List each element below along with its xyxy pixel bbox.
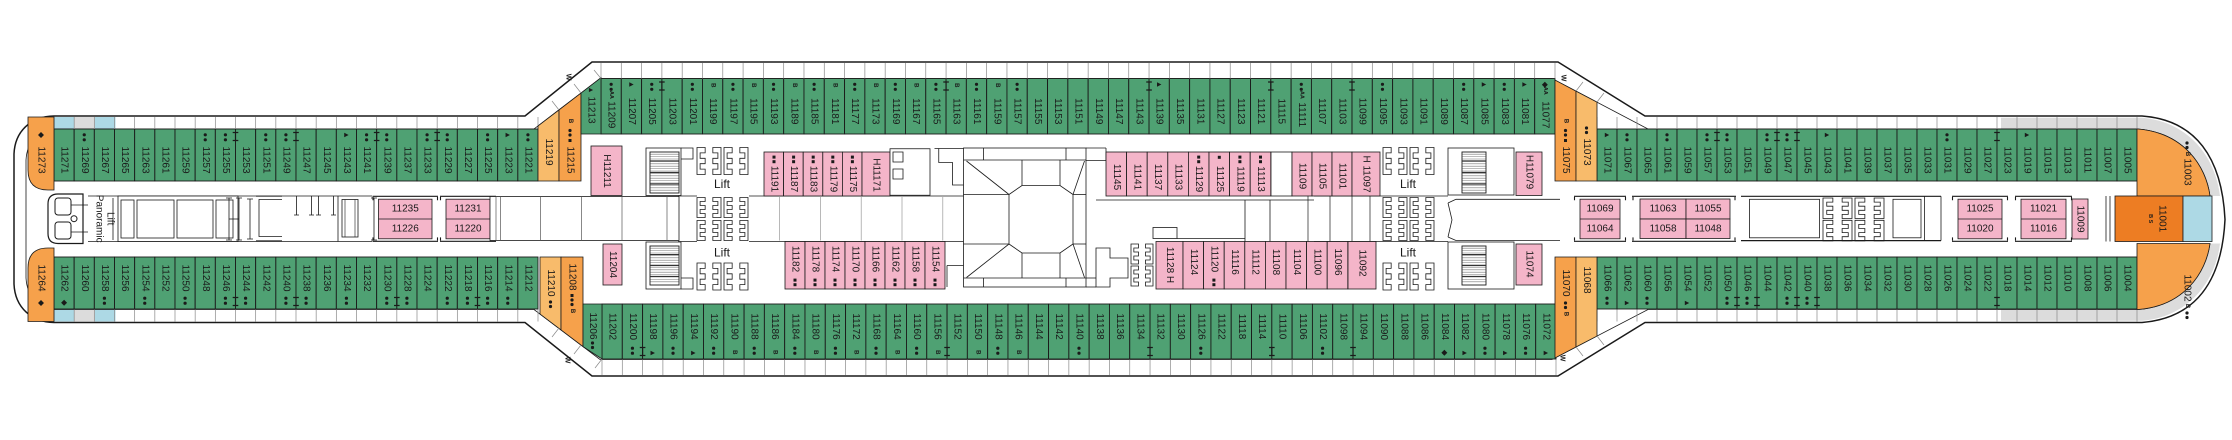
svg-text:W: W <box>1560 75 1567 82</box>
svg-text:11057: 11057 <box>1702 146 1713 174</box>
svg-text:11168: 11168 <box>871 313 882 340</box>
svg-text:11005: 11005 <box>2122 146 2133 174</box>
svg-text:11190: 11190 <box>728 313 739 340</box>
svg-text:11225: 11225 <box>482 146 493 174</box>
svg-text:11244: 11244 <box>240 264 251 292</box>
svg-text:11047: 11047 <box>1782 146 1793 174</box>
svg-text:11008: 11008 <box>2082 264 2093 292</box>
svg-text:11173: 11173 <box>870 98 881 125</box>
svg-text:11179: 11179 <box>827 166 838 193</box>
svg-text:11191: 11191 <box>769 166 780 193</box>
svg-text:11125: 11125 <box>1214 166 1225 193</box>
svg-text:B: B <box>953 83 959 88</box>
svg-text:11150: 11150 <box>972 313 983 340</box>
svg-text:11092: 11092 <box>1357 249 1368 277</box>
svg-text:11041: 11041 <box>1842 146 1853 174</box>
svg-text:11090: 11090 <box>1378 313 1389 341</box>
svg-text:11078: 11078 <box>1500 313 1511 341</box>
svg-text:11143: 11143 <box>1133 98 1144 125</box>
svg-text:11130: 11130 <box>1175 313 1186 340</box>
svg-text:11202: 11202 <box>607 313 618 341</box>
svg-text:11147: 11147 <box>1113 98 1124 125</box>
svg-text:11127: 11127 <box>1215 98 1226 125</box>
svg-text:11023: 11023 <box>2002 146 2013 174</box>
svg-text:11152: 11152 <box>952 313 963 340</box>
svg-text:11224: 11224 <box>422 264 433 292</box>
svg-text:11246: 11246 <box>220 264 231 292</box>
svg-text:Lift: Lift <box>1400 246 1417 260</box>
svg-text:11070: 11070 <box>1560 269 1571 297</box>
svg-text:11176: 11176 <box>830 313 841 340</box>
svg-text:B: B <box>872 83 878 88</box>
svg-text:11083: 11083 <box>1499 98 1510 126</box>
svg-text:11236: 11236 <box>321 264 332 292</box>
svg-text:B: B <box>812 350 818 355</box>
svg-text:11016: 11016 <box>2030 224 2058 235</box>
svg-text:H11171: H11171 <box>871 158 882 192</box>
svg-text:11234: 11234 <box>341 264 352 292</box>
svg-text:11063: 11063 <box>1649 204 1677 215</box>
svg-text:11036: 11036 <box>1842 264 1853 292</box>
svg-text:11115: 11115 <box>1275 98 1286 124</box>
svg-text:11157: 11157 <box>1012 98 1023 125</box>
svg-text:Lift: Lift <box>1400 177 1417 191</box>
svg-text:11248: 11248 <box>200 264 211 292</box>
svg-text:11106: 11106 <box>1297 313 1308 340</box>
svg-text:11123: 11123 <box>1235 98 1246 125</box>
svg-text:11135: 11135 <box>1174 98 1185 125</box>
svg-text:11271: 11271 <box>59 146 70 174</box>
svg-text:W: W <box>564 357 571 364</box>
svg-text:11035: 11035 <box>1902 146 1913 174</box>
svg-text:11094: 11094 <box>1358 313 1369 341</box>
svg-text:11019: 11019 <box>2022 146 2033 174</box>
svg-text:11038: 11038 <box>1822 264 1833 292</box>
svg-text:11206: 11206 <box>587 312 598 340</box>
svg-text:11189: 11189 <box>788 98 799 125</box>
svg-text:11108: 11108 <box>1270 249 1281 276</box>
svg-text:11048: 11048 <box>1694 224 1722 235</box>
svg-text:11138: 11138 <box>1094 313 1105 340</box>
svg-text:11261: 11261 <box>159 146 170 174</box>
svg-text:11166: 11166 <box>870 246 881 273</box>
svg-text:11229: 11229 <box>442 146 453 174</box>
svg-text:11255: 11255 <box>220 146 231 174</box>
svg-text:Lift: Lift <box>105 212 116 226</box>
svg-text:11237: 11237 <box>401 146 412 174</box>
svg-text:11240: 11240 <box>280 264 291 292</box>
svg-text:11084: 11084 <box>1439 313 1450 341</box>
svg-text:B: B <box>567 119 573 124</box>
svg-text:11151: 11151 <box>1073 98 1084 125</box>
svg-text:11257: 11257 <box>200 146 211 174</box>
svg-text:11162: 11162 <box>890 246 901 273</box>
svg-text:11251: 11251 <box>260 146 271 174</box>
svg-text:11056: 11056 <box>1662 264 1673 292</box>
svg-text:11252: 11252 <box>159 264 170 292</box>
svg-text:11192: 11192 <box>708 313 719 340</box>
svg-text:11269: 11269 <box>79 146 90 174</box>
svg-text:B: B <box>831 83 837 88</box>
svg-text:11022: 11022 <box>1982 264 1993 292</box>
svg-text:11273: 11273 <box>36 146 47 174</box>
svg-text:11222: 11222 <box>442 264 453 292</box>
svg-text:11122: 11122 <box>1216 313 1227 340</box>
svg-text:B: B <box>853 350 859 355</box>
svg-text:11232: 11232 <box>361 264 372 292</box>
svg-text:11004: 11004 <box>2122 264 2133 292</box>
svg-text:11014: 11014 <box>2022 264 2033 292</box>
svg-text:11213: 11213 <box>586 96 597 124</box>
svg-text:11260: 11260 <box>79 264 90 292</box>
svg-text:11181: 11181 <box>829 98 840 125</box>
svg-text:11170: 11170 <box>850 246 861 273</box>
svg-text:11195: 11195 <box>748 98 759 125</box>
svg-text:11043: 11043 <box>1822 146 1833 174</box>
svg-text:11231: 11231 <box>454 204 482 215</box>
svg-text:B S: B S <box>2147 214 2153 224</box>
svg-text:11050: 11050 <box>1722 264 1733 292</box>
svg-text:11077: 11077 <box>1539 101 1550 129</box>
svg-text:11216: 11216 <box>482 264 493 292</box>
svg-text:11131: 11131 <box>1194 98 1205 125</box>
svg-text:11154: 11154 <box>930 246 941 273</box>
svg-text:11188: 11188 <box>749 313 760 340</box>
svg-text:11204: 11204 <box>607 251 618 279</box>
svg-text:11088: 11088 <box>1398 313 1409 341</box>
svg-text:11110: 11110 <box>1276 314 1287 340</box>
svg-text:B: B <box>791 83 797 88</box>
svg-text:11113: 11113 <box>1255 166 1266 192</box>
svg-text:Panoramic: Panoramic <box>94 195 105 243</box>
svg-text:11129: 11129 <box>1193 166 1204 193</box>
svg-text:AA: AA <box>1542 87 1548 95</box>
svg-text:11080: 11080 <box>1479 313 1490 341</box>
svg-text:11198: 11198 <box>647 313 658 340</box>
svg-text:11197: 11197 <box>727 98 738 125</box>
svg-text:11006: 11006 <box>2102 264 2113 292</box>
svg-text:11086: 11086 <box>1419 313 1430 341</box>
svg-text:11031: 11031 <box>1942 146 1953 174</box>
svg-text:11137: 11137 <box>1152 164 1163 191</box>
svg-text:11033: 11033 <box>1922 146 1933 174</box>
svg-text:11228: 11228 <box>401 264 412 292</box>
svg-text:11177: 11177 <box>849 98 860 125</box>
svg-text:W: W <box>1559 355 1566 362</box>
svg-text:11187: 11187 <box>788 166 799 193</box>
svg-text:W: W <box>565 74 572 81</box>
svg-text:11262: 11262 <box>59 264 70 292</box>
svg-text:11178: 11178 <box>810 246 821 273</box>
svg-text:B: B <box>2184 304 2190 309</box>
svg-text:11116: 11116 <box>1229 249 1240 275</box>
svg-text:11193: 11193 <box>768 98 779 125</box>
svg-text:11066: 11066 <box>1602 264 1613 292</box>
svg-text:11241: 11241 <box>361 146 372 174</box>
svg-text:11030: 11030 <box>1902 264 1913 292</box>
svg-text:11104: 11104 <box>1291 249 1302 276</box>
svg-text:11139: 11139 <box>1154 98 1165 125</box>
svg-text:11242: 11242 <box>260 264 271 292</box>
svg-text:11199: 11199 <box>707 98 718 125</box>
svg-text:11239: 11239 <box>381 146 392 174</box>
svg-text:11214: 11214 <box>502 264 513 292</box>
svg-text:11249: 11249 <box>280 146 291 174</box>
svg-text:11091: 11091 <box>1418 98 1429 126</box>
svg-text:11044: 11044 <box>1762 264 1773 292</box>
svg-text:B: B <box>913 83 919 88</box>
svg-text:11142: 11142 <box>1053 313 1064 340</box>
svg-text:11185: 11185 <box>809 98 820 125</box>
svg-text:11053: 11053 <box>1722 146 1733 174</box>
svg-text:11169: 11169 <box>890 98 901 125</box>
svg-text:11175: 11175 <box>847 166 858 193</box>
svg-text:11011: 11011 <box>2082 147 2093 174</box>
svg-text:11208: 11208 <box>567 263 578 291</box>
svg-text:11158: 11158 <box>910 246 921 273</box>
svg-text:11215: 11215 <box>565 146 576 174</box>
svg-text:11227: 11227 <box>462 146 473 174</box>
svg-text:11194: 11194 <box>688 313 699 340</box>
svg-text:B: B <box>2184 152 2190 157</box>
svg-text:11067: 11067 <box>1622 146 1633 174</box>
svg-text:11105: 11105 <box>1317 163 1328 190</box>
svg-text:11254: 11254 <box>139 264 150 292</box>
svg-text:11007: 11007 <box>2102 146 2113 174</box>
svg-text:11119: 11119 <box>1234 166 1245 192</box>
svg-text:11029: 11029 <box>1962 146 1973 174</box>
svg-text:11153: 11153 <box>1052 98 1063 125</box>
svg-text:11073: 11073 <box>1581 138 1592 166</box>
svg-text:11264: 11264 <box>36 264 47 292</box>
svg-text:11052: 11052 <box>1702 264 1713 292</box>
svg-text:Lift: Lift <box>714 246 731 260</box>
svg-text:11111: 11111 <box>1296 102 1307 127</box>
svg-text:11209: 11209 <box>606 101 617 129</box>
svg-text:11074: 11074 <box>1524 250 1535 278</box>
svg-text:B: B <box>1563 312 1569 317</box>
svg-text:11226: 11226 <box>392 224 420 235</box>
svg-text:11087: 11087 <box>1458 98 1469 126</box>
svg-text:11250: 11250 <box>180 264 191 292</box>
svg-text:11218: 11218 <box>462 264 473 292</box>
svg-text:11025: 11025 <box>1966 204 1994 215</box>
svg-text:11134: 11134 <box>1134 313 1145 340</box>
svg-text:11010: 11010 <box>2062 264 2073 292</box>
svg-text:11233: 11233 <box>422 146 433 174</box>
svg-text:B: B <box>750 83 756 88</box>
svg-text:11118: 11118 <box>1236 314 1247 340</box>
svg-text:11200: 11200 <box>627 313 638 341</box>
svg-text:11009: 11009 <box>2075 205 2086 233</box>
svg-text:11145: 11145 <box>1111 164 1122 191</box>
svg-text:11258: 11258 <box>99 264 110 292</box>
svg-text:11102: 11102 <box>1317 313 1328 340</box>
svg-text:11101: 11101 <box>1337 163 1348 190</box>
svg-text:11126: 11126 <box>1195 313 1206 340</box>
svg-text:11210: 11210 <box>545 269 556 297</box>
svg-text:11081: 11081 <box>1519 98 1530 126</box>
svg-text:11247: 11247 <box>301 146 312 174</box>
svg-text:11112: 11112 <box>1250 249 1261 275</box>
svg-text:11100: 11100 <box>1311 249 1322 276</box>
svg-text:11159: 11159 <box>991 98 1002 125</box>
svg-text:11205: 11205 <box>646 98 657 126</box>
svg-text:11065: 11065 <box>1642 146 1653 174</box>
svg-text:11263: 11263 <box>139 146 150 174</box>
svg-text:11013: 11013 <box>2062 146 2073 174</box>
svg-text:11161: 11161 <box>971 98 982 125</box>
svg-text:11212: 11212 <box>522 264 533 292</box>
svg-text:11253: 11253 <box>240 146 251 174</box>
svg-text:11064: 11064 <box>1586 224 1614 235</box>
svg-text:11075: 11075 <box>1560 146 1571 174</box>
svg-text:11221: 11221 <box>522 146 533 174</box>
svg-text:11155: 11155 <box>1032 98 1043 125</box>
svg-text:H 11097: H 11097 <box>1361 155 1372 193</box>
svg-text:H11079: H11079 <box>1524 155 1535 190</box>
svg-text:11076: 11076 <box>1520 313 1531 341</box>
svg-text:11220: 11220 <box>454 224 482 235</box>
svg-text:11180: 11180 <box>810 313 821 340</box>
svg-text:11267: 11267 <box>99 146 110 174</box>
svg-text:11069: 11069 <box>1586 204 1614 215</box>
svg-text:11001: 11001 <box>2157 205 2168 233</box>
svg-text:11071: 11071 <box>1602 146 1613 174</box>
svg-text:11160: 11160 <box>911 313 922 340</box>
svg-text:11121: 11121 <box>1255 98 1266 125</box>
svg-text:11021: 11021 <box>2030 204 2058 215</box>
svg-text:11027: 11027 <box>1982 146 1993 174</box>
svg-text:11149: 11149 <box>1093 98 1104 125</box>
svg-text:11140: 11140 <box>1074 313 1085 340</box>
svg-text:11219: 11219 <box>543 138 554 166</box>
svg-text:11156: 11156 <box>931 313 942 340</box>
svg-text:B: B <box>710 83 716 88</box>
svg-text:11060: 11060 <box>1642 264 1653 292</box>
svg-text:11032: 11032 <box>1882 264 1893 292</box>
svg-text:11085: 11085 <box>1478 98 1489 126</box>
svg-text:11141: 11141 <box>1131 164 1142 191</box>
svg-text:11201: 11201 <box>687 98 698 126</box>
svg-text:11107: 11107 <box>1316 98 1327 125</box>
svg-text:11259: 11259 <box>180 146 191 174</box>
svg-text:11095: 11095 <box>1377 98 1388 126</box>
svg-text:11099: 11099 <box>1357 98 1368 126</box>
svg-text:11182: 11182 <box>790 246 801 273</box>
svg-text:11040: 11040 <box>1802 264 1813 292</box>
svg-text:11072: 11072 <box>1540 313 1551 341</box>
svg-text:B: B <box>772 350 778 355</box>
svg-text:H11211: H11211 <box>601 154 612 188</box>
svg-text:11174: 11174 <box>830 246 841 273</box>
svg-text:11148: 11148 <box>992 313 1003 340</box>
svg-text:11046: 11046 <box>1742 264 1753 292</box>
svg-text:Lift: Lift <box>714 177 731 191</box>
svg-text:11207: 11207 <box>626 98 637 126</box>
svg-text:AA: AA <box>608 91 614 99</box>
svg-text:11164: 11164 <box>891 313 902 340</box>
svg-text:11165: 11165 <box>930 98 941 125</box>
svg-text:B: B <box>994 83 1000 88</box>
svg-text:11002: 11002 <box>2182 274 2193 302</box>
svg-text:11089: 11089 <box>1438 98 1449 126</box>
svg-text:11093: 11093 <box>1397 98 1408 126</box>
svg-text:11096: 11096 <box>1332 248 1343 276</box>
svg-text:11098: 11098 <box>1337 313 1348 341</box>
svg-text:11238: 11238 <box>301 264 312 292</box>
svg-text:11026: 11026 <box>1942 264 1953 292</box>
svg-text:11203: 11203 <box>667 98 678 126</box>
svg-text:11045: 11045 <box>1802 146 1813 174</box>
svg-text:B: B <box>934 350 940 355</box>
svg-text:11132: 11132 <box>1155 313 1166 340</box>
svg-text:11196: 11196 <box>668 313 679 340</box>
svg-text:11042: 11042 <box>1782 264 1793 292</box>
svg-text:11243: 11243 <box>341 146 352 174</box>
svg-text:B: B <box>1015 350 1021 355</box>
svg-text:11146: 11146 <box>1013 313 1024 340</box>
svg-text:11128 H: 11128 H <box>1164 247 1175 283</box>
svg-text:11082: 11082 <box>1459 313 1470 341</box>
svg-text:11061: 11061 <box>1662 146 1673 174</box>
svg-text:11039: 11039 <box>1862 146 1873 174</box>
svg-text:11015: 11015 <box>2042 146 2053 174</box>
svg-text:11003: 11003 <box>2182 158 2193 186</box>
svg-text:11055: 11055 <box>1694 204 1722 215</box>
svg-text:11012: 11012 <box>2042 264 2053 292</box>
svg-text:11256: 11256 <box>119 264 130 292</box>
svg-text:11018: 11018 <box>2002 264 2013 292</box>
svg-text:11172: 11172 <box>850 313 861 340</box>
svg-text:11109: 11109 <box>1297 163 1308 190</box>
svg-text:11144: 11144 <box>1033 313 1044 340</box>
svg-text:11049: 11049 <box>1762 146 1773 174</box>
svg-text:11184: 11184 <box>789 313 800 340</box>
svg-text:11051: 11051 <box>1742 146 1753 174</box>
svg-text:11136: 11136 <box>1114 313 1125 340</box>
svg-text:11124: 11124 <box>1188 249 1199 276</box>
svg-text:B: B <box>975 350 981 355</box>
svg-text:11163: 11163 <box>951 98 962 125</box>
svg-text:11037: 11037 <box>1882 146 1893 174</box>
svg-text:B: B <box>893 350 899 355</box>
svg-text:11133: 11133 <box>1173 164 1184 191</box>
svg-text:11103: 11103 <box>1336 98 1347 125</box>
svg-text:11183: 11183 <box>808 166 819 193</box>
svg-text:11054: 11054 <box>1682 264 1693 292</box>
svg-text:11235: 11235 <box>392 204 420 215</box>
svg-text:11114: 11114 <box>1256 314 1267 340</box>
svg-text:11167: 11167 <box>910 98 921 125</box>
svg-text:11186: 11186 <box>769 313 780 340</box>
svg-text:B: B <box>569 309 575 314</box>
svg-text:B: B <box>731 350 737 355</box>
svg-text:11230: 11230 <box>381 264 392 292</box>
svg-text:11058: 11058 <box>1649 224 1677 235</box>
svg-text:11024: 11024 <box>1962 264 1973 292</box>
svg-text:11059: 11059 <box>1682 146 1693 174</box>
svg-text:11245: 11245 <box>321 146 332 174</box>
svg-text:AA: AA <box>1298 91 1304 99</box>
svg-text:11068: 11068 <box>1581 266 1592 294</box>
svg-text:11223: 11223 <box>502 146 513 174</box>
svg-text:11028: 11028 <box>1922 264 1933 292</box>
svg-text:11020: 11020 <box>1966 224 1994 235</box>
svg-text:11034: 11034 <box>1862 264 1873 292</box>
svg-text:11265: 11265 <box>119 146 130 174</box>
svg-text:11120: 11120 <box>1208 246 1219 273</box>
